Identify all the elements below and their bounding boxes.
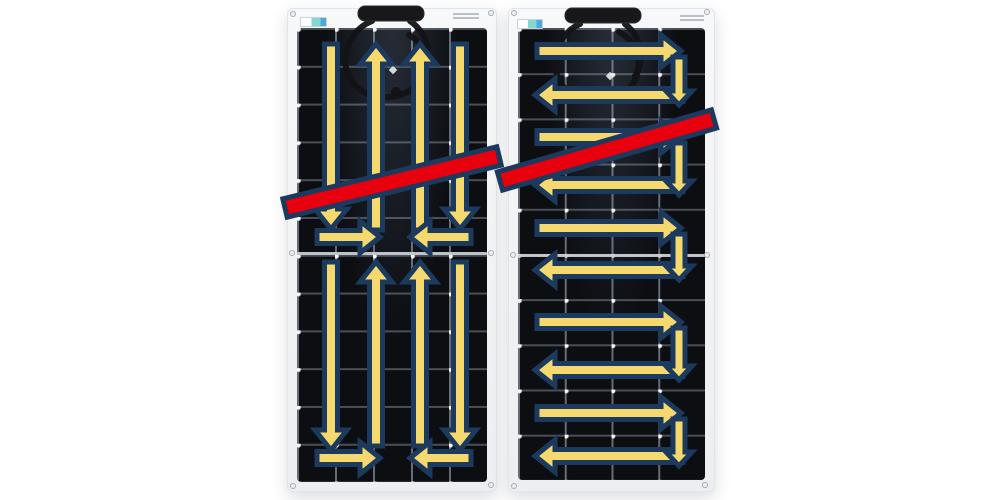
frame-screw xyxy=(488,250,494,256)
frame-screw xyxy=(511,483,517,489)
left-panel-section-seam xyxy=(297,252,487,255)
brand-sticker xyxy=(517,19,543,29)
frame-screw xyxy=(510,252,516,258)
solar-left-panel xyxy=(287,8,497,492)
frame-screw xyxy=(704,252,710,258)
frame-screw xyxy=(488,482,494,488)
spec-label-sticker xyxy=(680,15,704,23)
right-panel-section-seam xyxy=(518,254,705,257)
solar-right-panel xyxy=(508,8,715,492)
product-image-canvas xyxy=(0,0,1000,500)
graphic-overlay xyxy=(0,0,1000,500)
frame-screw xyxy=(290,483,296,489)
frame-screw xyxy=(290,11,296,17)
frame-screw xyxy=(488,10,494,16)
left-panel-cell-grid xyxy=(297,28,487,482)
frame-screw xyxy=(289,250,295,256)
frame-screw xyxy=(704,9,710,15)
frame-screw xyxy=(702,482,708,488)
frame-screw xyxy=(511,10,517,16)
brand-sticker xyxy=(300,17,327,27)
spec-label-sticker xyxy=(453,13,479,21)
